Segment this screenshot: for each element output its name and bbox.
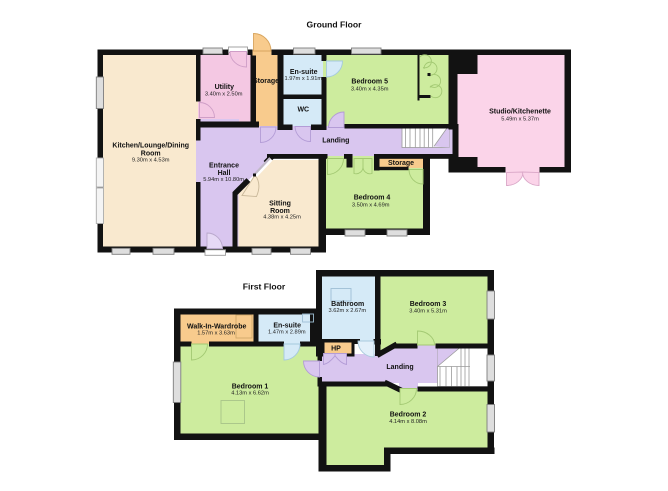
- svg-text:Bedroom 4: Bedroom 4: [354, 195, 391, 202]
- svg-text:Entrance: Entrance: [209, 163, 239, 170]
- svg-text:Landing: Landing: [322, 138, 349, 145]
- svg-text:Bedroom 5: Bedroom 5: [351, 79, 388, 86]
- svg-text:5.49m x 5.37m: 5.49m x 5.37m: [501, 117, 539, 123]
- svg-text:Bedroom 1: Bedroom 1: [232, 384, 269, 391]
- svg-text:Sitting: Sitting: [269, 201, 291, 208]
- svg-text:3.50m x 4.69m: 3.50m x 4.69m: [352, 203, 390, 209]
- svg-text:3.62m x 2.67m: 3.62m x 2.67m: [328, 308, 366, 314]
- svg-text:4.13m x 6.62m: 4.13m x 6.62m: [231, 391, 269, 397]
- svg-text:Bedroom 3: Bedroom 3: [410, 301, 447, 308]
- svg-text:First Floor: First Floor: [243, 282, 286, 292]
- svg-text:3.40m x 5.31m: 3.40m x 5.31m: [409, 309, 447, 315]
- svg-text:1.47m x 2.89m: 1.47m x 2.89m: [268, 330, 306, 336]
- svg-text:1.97m x 1.91m: 1.97m x 1.91m: [284, 76, 322, 82]
- svg-text:Landing: Landing: [386, 364, 413, 371]
- svg-text:1.57m x 3.63m: 1.57m x 3.63m: [197, 331, 235, 337]
- svg-text:9.30m x 4.53m: 9.30m x 4.53m: [132, 158, 170, 164]
- svg-text:Storage: Storage: [253, 78, 279, 85]
- svg-text:Room: Room: [141, 151, 161, 158]
- svg-text:3.40m x 2.50m: 3.40m x 2.50m: [205, 92, 243, 98]
- svg-text:Ground Floor: Ground Floor: [307, 20, 363, 30]
- svg-text:Studio/Kitchenette: Studio/Kitchenette: [489, 109, 551, 116]
- svg-text:4.14m x 8.08m: 4.14m x 8.08m: [389, 419, 427, 425]
- svg-text:Kitchen/Lounge/Dining: Kitchen/Lounge/Dining: [112, 143, 189, 150]
- svg-text:En-suite: En-suite: [290, 69, 318, 76]
- svg-text:En-suite: En-suite: [273, 323, 301, 330]
- svg-text:4.38m x 4.25m: 4.38m x 4.25m: [263, 215, 301, 221]
- svg-text:3.40m x 4.35m: 3.40m x 4.35m: [351, 87, 389, 93]
- svg-text:Walk-In-Wardrobe: Walk-In-Wardrobe: [187, 324, 246, 331]
- svg-text:Storage: Storage: [388, 160, 414, 167]
- svg-text:5.94m x 10.80m: 5.94m x 10.80m: [203, 177, 244, 183]
- svg-text:Utility: Utility: [215, 84, 235, 91]
- svg-text:HP: HP: [331, 346, 341, 353]
- svg-text:Hall: Hall: [218, 170, 231, 177]
- svg-text:Bathroom: Bathroom: [331, 301, 364, 308]
- svg-text:Bedroom 2: Bedroom 2: [390, 412, 427, 419]
- svg-text:WC: WC: [297, 107, 309, 114]
